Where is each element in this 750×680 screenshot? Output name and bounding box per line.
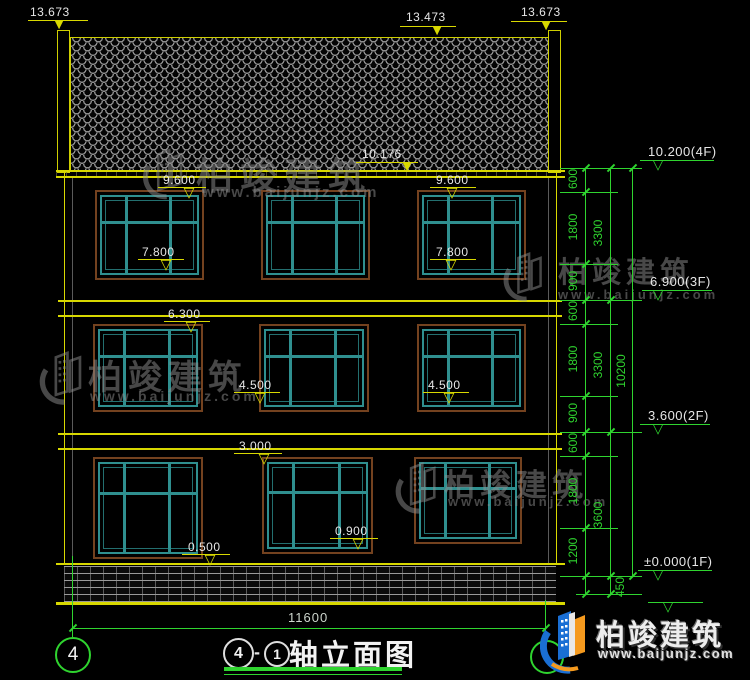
gable-parapet-right [548, 30, 561, 173]
story-level-triangle-icon: ▽ [650, 422, 666, 435]
level-triangle-filled-icon: ▼ [538, 19, 554, 32]
level-triangle-filled-icon: ▼ [51, 18, 67, 31]
chain-line-col1 [585, 168, 586, 595]
floor-band-2f [58, 448, 562, 450]
chain-dim-text: 3600 [591, 493, 605, 537]
chain-dim-text: 1800 [566, 337, 580, 381]
plinth-brick-pattern [64, 566, 556, 602]
title-underline-thin [224, 674, 402, 675]
window-1f-left [93, 457, 203, 559]
window-frame [100, 195, 199, 275]
level-triangle-icon: ▽ [256, 452, 272, 465]
level-triangle-icon: ▽ [441, 391, 457, 404]
chain-total-text: 10200 [614, 349, 628, 393]
floor-band-2f [58, 433, 562, 435]
window-frame [98, 462, 198, 554]
chain-dim-text: 1200 [566, 529, 580, 573]
level-triangle-icon: ▽ [202, 553, 218, 566]
watermark-url: www.baijunjz.com [202, 184, 379, 201]
watermark [38, 348, 88, 411]
window-3f-center [261, 190, 370, 280]
level-triangle-filled-icon: ▼ [399, 160, 415, 173]
window-frame [422, 329, 521, 407]
logo-url-text: www.baijunjz.com [598, 646, 734, 661]
watermark-building-icon [502, 248, 548, 304]
level-triangle-icon: ▽ [252, 391, 268, 404]
chain-dim-text: 600 [566, 421, 580, 465]
chain-line-col3 [632, 168, 633, 577]
gable-parapet-left [57, 30, 70, 173]
axis-bubble-number: 4 [68, 644, 79, 666]
watermark-building-icon [394, 458, 442, 516]
level-triangle-filled-icon: ▼ [429, 24, 445, 37]
watermark-url: www.baijunjz.com [90, 388, 259, 404]
title-axis-end-bubble: 1 [264, 641, 290, 667]
plinth-bottom-line [56, 602, 565, 605]
window-2f-right [417, 324, 526, 412]
watermark [502, 248, 548, 309]
story-level-triangle-icon: ▽ [650, 568, 666, 581]
level-triangle-icon: ▽ [158, 258, 174, 271]
logo-building-icon [540, 606, 594, 674]
chain-dim-text: 1800 [566, 205, 580, 249]
watermark [394, 458, 442, 521]
level-triangle-icon: ▽ [443, 258, 459, 271]
chain-dim-text: 1800 [566, 469, 580, 513]
window-frame [264, 329, 364, 407]
bottom-dimension-line [72, 628, 545, 629]
story-level-triangle-icon: ▽ [650, 158, 666, 171]
level-text-eave: 10.176 [362, 147, 402, 161]
title-axis-start: 4 [234, 645, 243, 663]
title-underline-thick [224, 667, 402, 671]
level-triangle-icon: ▽ [181, 186, 197, 199]
level-triangle-icon: ▽ [350, 537, 366, 550]
title-separator: - [254, 642, 261, 663]
window-2f-center [259, 324, 369, 412]
chain-line-col2 [610, 168, 611, 595]
axis-bubble-4: 4 [55, 637, 91, 673]
chain-dim-text: 600 [566, 289, 580, 333]
title-axis-end: 1 [273, 646, 281, 662]
chain-dim-text: 600 [566, 157, 580, 201]
window-frame [266, 195, 365, 275]
chain-plinth-text: 450 [613, 565, 627, 609]
chain-dim-text: 3300 [591, 211, 605, 255]
story-level-triangle-icon: ▽ [650, 288, 666, 301]
chain-dim-text: 3300 [591, 343, 605, 387]
plinth-top-line [56, 563, 565, 565]
bottom-dimension-text: 11600 [288, 610, 328, 625]
level-triangle-icon: ▽ [444, 186, 460, 199]
level-line [400, 26, 456, 27]
floor-band-3f [58, 315, 562, 317]
watermark-building-icon [38, 348, 88, 406]
floor-band-3f [58, 300, 562, 302]
elevation-drawing-canvas: 柏竣建筑 www.baijunjz.com 柏竣建筑 www.baijunjz.… [0, 0, 750, 680]
title-axis-start-bubble: 4 [223, 638, 254, 669]
level-triangle-icon: ▽ [183, 320, 199, 333]
